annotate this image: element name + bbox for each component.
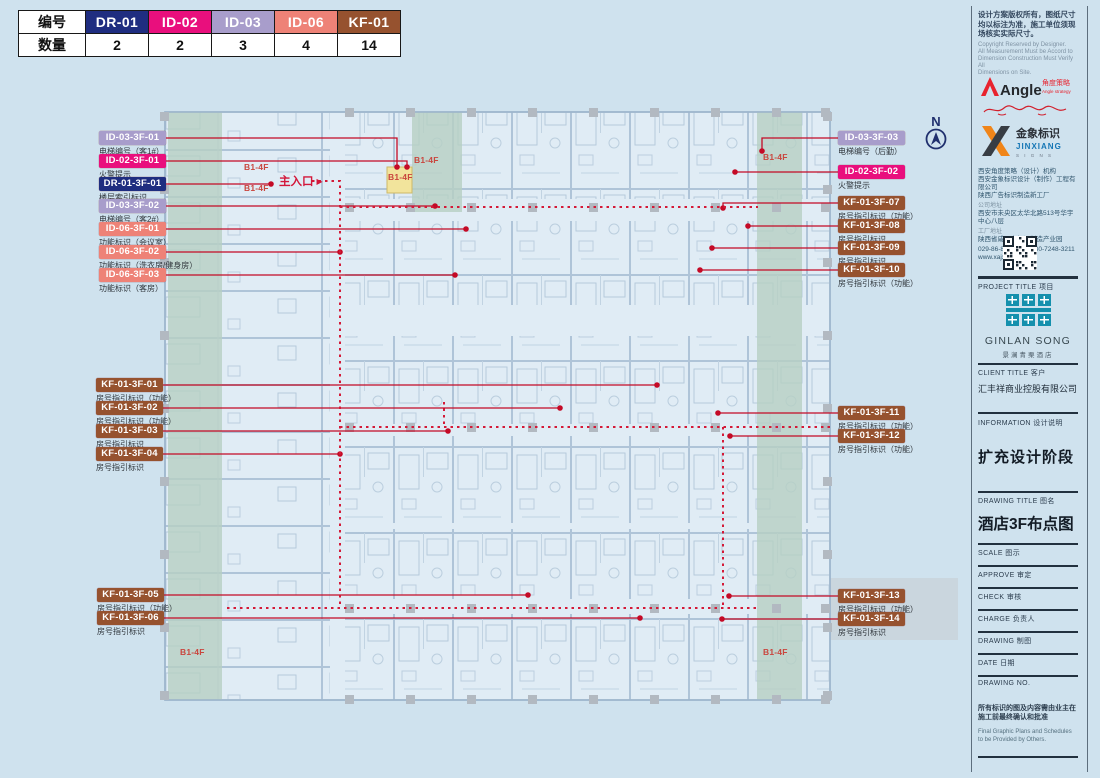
legend-code-ID-02: ID-02 bbox=[149, 11, 212, 34]
section-rule bbox=[978, 491, 1078, 493]
angle-logo: Angle 角度策略 Angle strategy bbox=[978, 72, 1078, 107]
sign-code-chip: DR-01-3F-01 bbox=[99, 177, 166, 191]
callout-KF-01-3F-02: KF-01-3F-02房号指引标识（功能） bbox=[96, 401, 176, 426]
sign-code-chip: KF-01-3F-07 bbox=[838, 196, 905, 210]
area-tag-b1-4f: B1-4F bbox=[244, 162, 269, 172]
sign-code-chip: ID-03-3F-02 bbox=[99, 199, 166, 213]
callout-KF-01-3F-14: KF-01-3F-14房号指引标识 bbox=[838, 612, 905, 637]
field-rule bbox=[978, 653, 1078, 655]
section-rule bbox=[978, 363, 1078, 365]
floor-plan bbox=[158, 103, 840, 708]
callout-DR-01-3F-01: DR-01-3F-01楼层索引标识 bbox=[99, 177, 166, 202]
callout-KF-01-3F-04: KF-01-3F-04房号指引标识 bbox=[96, 447, 163, 472]
callout-KF-01-3F-12: KF-01-3F-12房号指引标识（功能） bbox=[838, 429, 918, 454]
jinxiang-en: JINXIANG bbox=[1016, 142, 1062, 151]
note-en-line: Copyright Reserved by Designer. bbox=[978, 42, 1078, 49]
callout-KF-01-3F-07: KF-01-3F-07房号指引标识（功能） bbox=[838, 196, 918, 221]
sign-code-chip: KF-01-3F-04 bbox=[96, 447, 163, 461]
field-rule bbox=[978, 675, 1078, 677]
legend-count-DR-01: 2 bbox=[86, 34, 149, 57]
callout-ID-03-3F-01: ID-03-3F-01电梯编号（客1#） bbox=[99, 131, 166, 156]
legend-count-ID-03: 3 bbox=[212, 34, 275, 57]
callout-KF-01-3F-05: KF-01-3F-05房号指引标识（功能） bbox=[97, 588, 177, 613]
north-letter: N bbox=[924, 116, 948, 128]
design-phase: 扩充设计阶段 bbox=[978, 446, 1078, 467]
client-title-label: CLIENT TITLE 客户 bbox=[978, 368, 1078, 378]
factory-address-label: 工厂地址 bbox=[978, 228, 1078, 236]
legend-table: 编号 DR-01ID-02ID-03ID-06KF-01 数量 223414 bbox=[18, 10, 401, 57]
sign-code-chip: ID-06-3F-03 bbox=[99, 268, 166, 282]
sign-desc-label: 房号指引标识 bbox=[97, 627, 164, 636]
sign-code-chip: ID-06-3F-01 bbox=[99, 222, 166, 236]
sign-code-chip: KF-01-3F-12 bbox=[838, 429, 905, 443]
company-line: 西安角度策略（设计）机构 bbox=[978, 168, 1078, 176]
sign-code-chip: ID-06-3F-02 bbox=[99, 245, 166, 259]
brand-name-zh: 景澜青栗酒店 bbox=[978, 349, 1078, 359]
legend-row2-label: 数量 bbox=[19, 34, 86, 57]
jinxiang-logo: 金象标识 JINXIANG S I G N S bbox=[978, 120, 1078, 171]
sign-code-chip: KF-01-3F-02 bbox=[96, 401, 163, 415]
legend-count-KF-01: 14 bbox=[338, 34, 401, 57]
drawing-title: 酒店3F布点图 bbox=[978, 512, 1078, 534]
brand-seal-blocks bbox=[1000, 294, 1056, 328]
note-en-line: All Measurement Must be Accord to bbox=[978, 49, 1078, 56]
sign-code-chip: KF-01-3F-13 bbox=[838, 589, 905, 603]
callout-ID-06-3F-03: ID-06-3F-03功能标识（客房） bbox=[99, 268, 166, 293]
callout-ID-02-3F-02: ID-02-3F-02火警提示 bbox=[838, 165, 905, 190]
field-label-drawing: DRAWING 制图 bbox=[978, 636, 1078, 646]
company-line: 西安金象标识设计（制作）工程有限公司 bbox=[978, 176, 1078, 192]
sign-desc-label: 功能标识（客房） bbox=[99, 284, 166, 293]
callout-ID-06-3F-01: ID-06-3F-01功能标识（会议室） bbox=[99, 222, 171, 247]
field-label-check: CHECK 审核 bbox=[978, 592, 1078, 602]
field-rule bbox=[978, 587, 1078, 589]
callout-KF-01-3F-13: KF-01-3F-13房号指引标识（功能） bbox=[838, 589, 918, 614]
field-label-approve: APPROVE 审定 bbox=[978, 570, 1078, 580]
callout-ID-03-3F-03: ID-03-3F-03电梯编号（后勤） bbox=[838, 131, 905, 156]
company-address-label: 公司地址 bbox=[978, 202, 1078, 210]
brand-name: GINLAN SONG bbox=[978, 335, 1078, 347]
callout-KF-01-3F-01: KF-01-3F-01房号指引标识（功能） bbox=[96, 378, 176, 403]
angle-logo-zh: 角度策略 bbox=[1042, 78, 1070, 87]
field-label-date: DATE 日期 bbox=[978, 658, 1078, 668]
entrance-arrow-icon: ▶ bbox=[317, 176, 323, 187]
sign-code-chip: ID-03-3F-03 bbox=[838, 131, 905, 145]
field-rule bbox=[978, 631, 1078, 633]
company-address: 西安市未央区太华北路513号华宇中心八层 bbox=[978, 210, 1078, 226]
callout-KF-01-3F-08: KF-01-3F-08房号指引标识 bbox=[838, 219, 905, 244]
sign-desc-label: 房号指引标识 bbox=[96, 463, 163, 472]
angle-logo-name: Angle bbox=[1000, 82, 1042, 99]
area-tag-b1-4f: B1-4F bbox=[414, 155, 439, 165]
legend-code-ID-03: ID-03 bbox=[212, 11, 275, 34]
section-rule bbox=[978, 412, 1078, 414]
footer-note-zh: 所有标识的图及内容需由业主在施工前最终确认和批准 bbox=[978, 704, 1078, 722]
field-rule bbox=[978, 565, 1078, 567]
sign-code-chip: KF-01-3F-05 bbox=[97, 588, 164, 602]
field-label-charge: CHARGE 负责人 bbox=[978, 614, 1078, 624]
sign-desc-label: 电梯编号（后勤） bbox=[838, 147, 905, 156]
information-label: INFORMATION 设计说明 bbox=[978, 418, 1078, 428]
angle-logo-en: Angle strategy bbox=[1042, 89, 1072, 94]
project-title-label: PROJECT TITLE 项目 bbox=[978, 282, 1078, 292]
field-label-drawing: DRAWING NO. bbox=[978, 680, 1078, 687]
legend-row1-label: 编号 bbox=[19, 11, 86, 34]
legend-count-row: 数量 223414 bbox=[19, 34, 401, 57]
sign-code-chip: KF-01-3F-10 bbox=[838, 263, 905, 277]
area-tag-b1-4f: B1-4F bbox=[388, 172, 413, 182]
sign-code-chip: KF-01-3F-03 bbox=[96, 424, 163, 438]
sign-desc-label: 房号指引标识 bbox=[838, 628, 905, 637]
sign-desc-label: 火警提示 bbox=[838, 181, 905, 190]
legend-count-ID-02: 2 bbox=[149, 34, 212, 57]
area-tag-b1-4f: B1-4F bbox=[244, 183, 269, 193]
note-en-line: Dimension Construction Must Verify All bbox=[978, 56, 1078, 70]
sign-code-chip: KF-01-3F-11 bbox=[838, 406, 905, 420]
signage-plan-sheet: { "legend": { "row1_label": "编号", "row2_… bbox=[0, 0, 1100, 778]
angle-logo-mark bbox=[981, 77, 999, 96]
legend-code-DR-01: DR-01 bbox=[86, 11, 149, 34]
legend-count-ID-06: 4 bbox=[275, 34, 338, 57]
legend-code-KF-01: KF-01 bbox=[338, 11, 401, 34]
footer-note-en: Final Graphic Plans and Schedules to be … bbox=[978, 728, 1078, 744]
qr-code bbox=[1003, 236, 1037, 270]
brand-logo: GINLAN SONG 景澜青栗酒店 bbox=[978, 294, 1078, 359]
callout-KF-01-3F-06: KF-01-3F-06房号指引标识 bbox=[97, 611, 164, 636]
entrance-text: 主入口 bbox=[279, 173, 314, 189]
callout-ID-02-3F-01: ID-02-3F-01火警提示 bbox=[99, 154, 166, 179]
copyright-note-zh: 设计方案版权所有，图纸尺寸均以标注为准，施工单位须现场核实实际尺寸。 bbox=[978, 10, 1078, 39]
sign-code-chip: KF-01-3F-08 bbox=[838, 219, 905, 233]
legend-code-row: 编号 DR-01ID-02ID-03ID-06KF-01 bbox=[19, 11, 401, 34]
sheet-edge-line bbox=[1087, 6, 1088, 772]
entrance-label: 主入口 ▶ bbox=[279, 173, 323, 189]
jinxiang-zh: 金象标识 bbox=[1015, 126, 1060, 140]
field-label-scale: SCALE 图示 bbox=[978, 548, 1078, 558]
callout-ID-03-3F-02: ID-03-3F-02电梯编号（客2#） bbox=[99, 199, 166, 224]
jinxiang-sub: S I G N S bbox=[1016, 153, 1053, 158]
section-rule bbox=[978, 756, 1078, 758]
company-line: 陕西广告标识制造新工厂 bbox=[978, 192, 1078, 200]
sign-code-chip: KF-01-3F-06 bbox=[97, 611, 164, 625]
north-arrow: N bbox=[924, 116, 948, 155]
titleblock-divider-line bbox=[971, 6, 972, 772]
sign-desc-label: 房号指引标识（功能） bbox=[838, 445, 918, 454]
client-name: 汇丰祥商业控股有限公司 bbox=[978, 382, 1078, 395]
field-rule bbox=[978, 609, 1078, 611]
legend-code-ID-06: ID-06 bbox=[275, 11, 338, 34]
north-compass-icon bbox=[925, 128, 947, 150]
sign-code-chip: KF-01-3F-14 bbox=[838, 612, 905, 626]
area-tag-b1-4f: B1-4F bbox=[763, 647, 788, 657]
callout-KF-01-3F-10: KF-01-3F-10房号指引标识（功能） bbox=[838, 263, 918, 288]
sign-code-chip: ID-03-3F-01 bbox=[99, 131, 166, 145]
sign-desc-label: 房号指引标识（功能） bbox=[838, 279, 918, 288]
callout-KF-01-3F-03: KF-01-3F-03房号指引标识 bbox=[96, 424, 163, 449]
sign-code-chip: ID-02-3F-02 bbox=[838, 165, 905, 179]
callout-KF-01-3F-09: KF-01-3F-09房号指引标识 bbox=[838, 241, 905, 266]
callout-ID-06-3F-02: ID-06-3F-02功能标识（洗衣房/健身房） bbox=[99, 245, 197, 270]
area-tag-b1-4f: B1-4F bbox=[180, 647, 205, 657]
sign-code-chip: KF-01-3F-09 bbox=[838, 241, 905, 255]
title-block: 设计方案版权所有，图纸尺寸均以标注为准，施工单位须现场核实实际尺寸。 Copyr… bbox=[978, 0, 1082, 778]
drawing-title-label: DRAWING TITLE 图名 bbox=[978, 496, 1078, 506]
sign-code-chip: KF-01-3F-01 bbox=[96, 378, 163, 392]
field-rule bbox=[978, 543, 1078, 545]
callout-KF-01-3F-11: KF-01-3F-11房号指引标识（功能） bbox=[838, 406, 918, 431]
area-tag-b1-4f: B1-4F bbox=[763, 152, 788, 162]
sign-code-chip: ID-02-3F-01 bbox=[99, 154, 166, 168]
section-rule bbox=[978, 276, 1078, 279]
